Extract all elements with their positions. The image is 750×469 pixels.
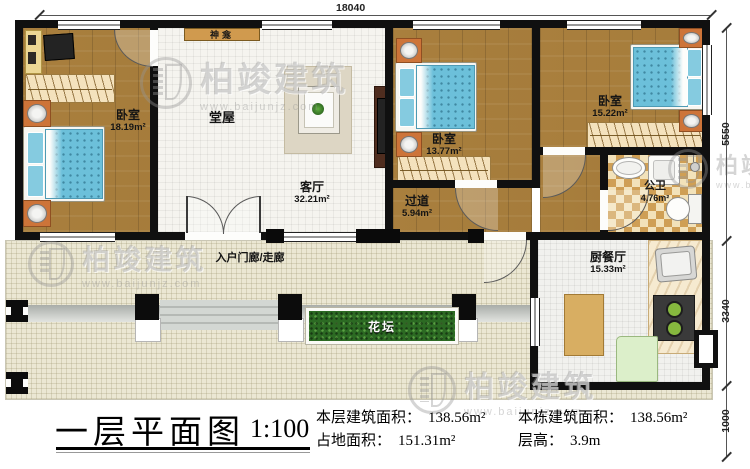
wall-left [15, 20, 23, 240]
nightstand [679, 110, 704, 132]
label-hallway: 过道 5.94m² [402, 194, 432, 220]
door-opening [600, 190, 608, 230]
stat-floor-area: 本层建筑面积：138.56m² [316, 406, 485, 427]
flower-bed-label: 花坛 [368, 318, 396, 335]
label-bedroom-right: 卧室 15.22m² [592, 94, 627, 120]
sink [612, 157, 646, 179]
stat-building-area: 本栋建筑面积：138.56m² [518, 406, 687, 427]
toilet [666, 197, 690, 221]
door-leaf [259, 196, 261, 233]
toilet-tank [688, 194, 702, 224]
pillar-base [135, 318, 161, 342]
door-opening [543, 147, 585, 155]
flower-bed: 花坛 [306, 308, 458, 344]
door-opening [484, 232, 526, 240]
dimension-line-right [726, 28, 727, 458]
label-bathroom: 公卫 4.76m² [641, 180, 670, 204]
dimension-right-top: 5550 [706, 128, 746, 140]
column-symbol [6, 300, 28, 322]
window [702, 45, 712, 115]
decor-item [28, 52, 36, 64]
mattress [416, 65, 475, 129]
stove [653, 295, 695, 341]
pillow [687, 78, 702, 106]
dimension-right-mid: 3340 [706, 305, 746, 317]
dining-table [564, 294, 604, 356]
floor-plan-canvas: 花坛 [0, 0, 750, 469]
nightstand [396, 132, 422, 157]
window [567, 20, 641, 30]
nightstand [396, 38, 422, 63]
mattress [633, 47, 688, 107]
plant-icon [312, 103, 324, 115]
window [284, 232, 356, 242]
wall-bedroomM-bedroomR [532, 28, 540, 188]
stat-footprint-area: 占地面积：151.31m² [316, 429, 455, 450]
kitchen-sink [655, 245, 698, 282]
pillow [27, 132, 44, 164]
pillow [687, 49, 702, 77]
column-symbol [6, 372, 28, 394]
pillar [135, 294, 159, 320]
window [262, 20, 332, 30]
pillow [399, 98, 415, 127]
tv [43, 33, 75, 61]
label-living: 客厅 32.21m² [294, 180, 329, 206]
pillar-base [278, 318, 304, 342]
shower-head [690, 162, 700, 172]
fridge [616, 336, 658, 382]
wall-column-base [266, 229, 284, 243]
pillow [399, 68, 415, 97]
window [58, 20, 120, 30]
shrine-altar: 神龛 [184, 28, 260, 41]
decor-item [28, 35, 36, 45]
label-kitchen: 厨餐厅 15.33m² [590, 250, 626, 276]
label-bedroom-mid: 卧室 13.77m² [426, 132, 461, 158]
pillow [27, 165, 44, 197]
wall-column-base [468, 229, 484, 243]
nightstand [23, 200, 51, 227]
pillar [278, 294, 302, 320]
kitchen-side-door [694, 330, 718, 368]
title-underline [56, 447, 310, 450]
label-bedroom-left: 卧室 18.19m² [110, 108, 145, 134]
dimension-top-value: 18040 [336, 2, 365, 14]
window [40, 232, 115, 242]
bed [23, 126, 105, 202]
entry-steps [160, 300, 278, 330]
nightstand [679, 28, 704, 48]
nightstand [23, 100, 51, 127]
page-title: 一层平面图 [55, 405, 245, 453]
window [530, 298, 540, 346]
stat-storey-height: 层高：3.9m [518, 429, 600, 450]
mattress [45, 129, 103, 199]
wardrobe [397, 156, 491, 183]
door-leaf [186, 196, 188, 233]
window [413, 20, 500, 30]
dimension-right-bottom: 1000 [706, 415, 746, 427]
bed [630, 44, 706, 110]
wall-kitchen-bottom [530, 382, 710, 390]
title-underline-2 [56, 452, 310, 453]
dimension-line-top [40, 15, 712, 16]
bed [395, 62, 477, 132]
label-porch: 入户门廊/走廊 [215, 252, 284, 265]
wall-column-base [356, 229, 400, 243]
door-opening [455, 180, 497, 188]
label-hall: 堂屋 [209, 110, 235, 126]
wardrobe [25, 74, 115, 103]
wall-hall-bedroomM [385, 28, 393, 232]
plan-scale: 1:100 [250, 414, 309, 444]
